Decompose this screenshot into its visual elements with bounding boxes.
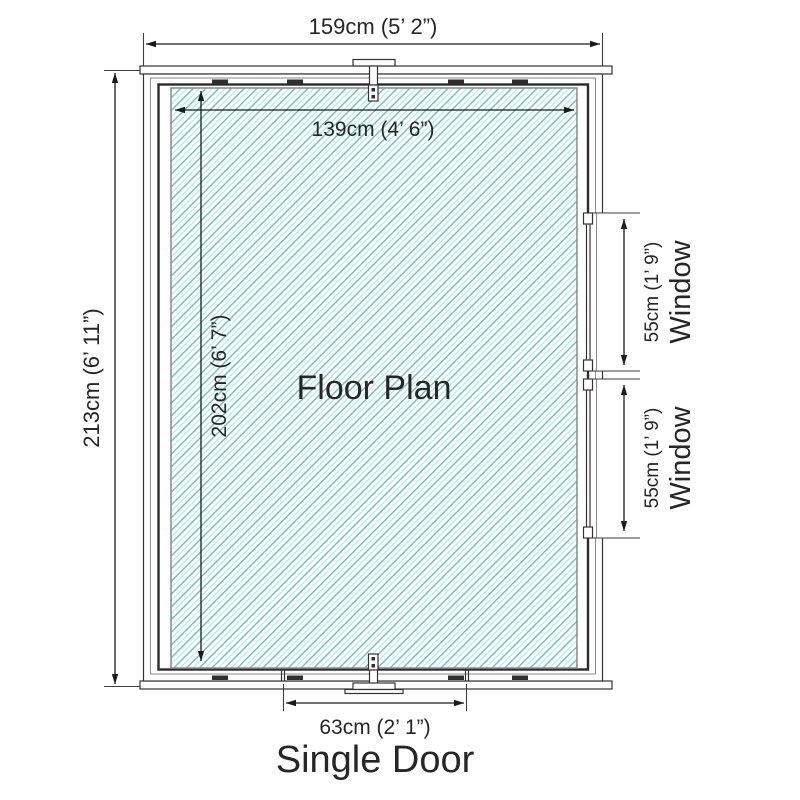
overall-width-label: 159cm (5’ 2”) [309,14,438,39]
hinge-icon [287,80,303,85]
window-upper-label: Window [665,239,697,343]
single-door-label: Single Door [276,739,475,781]
bracket-screw-icon [372,657,376,661]
hinge-icon [512,80,528,85]
bracket-bar [353,683,395,690]
bracket-plate [369,654,379,670]
hinge-icon [448,80,464,85]
window-sill [584,213,593,224]
bracket-screw-icon [372,88,376,92]
internal-depth-label: 202cm (6’ 7”) [208,315,231,438]
door-width-label: 63cm (2’ 1”) [319,716,430,739]
window-upper [582,213,608,372]
floor-plan-label: Floor Plan [297,369,452,407]
bracket-screw-icon [372,95,376,99]
dim-overall-depth: 213cm (6’ 11”) [79,71,140,687]
hinge-icon [512,676,528,681]
internal-width-label: 139cm (4’ 6”) [312,118,435,141]
dim-overall-width: 159cm (5’ 2”) [144,14,603,66]
bracket-base [345,690,403,694]
window-sill [584,360,593,371]
hinge-icon [448,676,464,681]
hinge-icon [287,676,303,681]
bracket-bar [353,60,395,67]
dim-door-width: 63cm (2’ 1”) Single Door [276,684,475,781]
bracket-screw-icon [372,664,376,668]
floor-plan-diagram: 159cm (5’ 2”) 213cm (6’ 11”) 139cm (4’ 6… [0,0,800,800]
hinge-icon [212,80,228,85]
overall-depth-label: 213cm (6’ 11”) [79,308,104,447]
bracket-plate [369,85,379,101]
window-lower-label: Window [665,405,697,509]
bracket-stem [370,670,378,684]
window-sill [584,379,593,390]
window-sill [584,527,593,538]
bracket-stem [370,66,378,85]
hinge-icon [212,676,228,681]
window-upper-height-label: 55cm (1’ 9”) [642,242,663,343]
window-lower [582,379,608,539]
floor-plan-page: 159cm (5’ 2”) 213cm (6’ 11”) 139cm (4’ 6… [0,0,800,800]
window-lower-height-label: 55cm (1’ 9”) [642,408,663,509]
